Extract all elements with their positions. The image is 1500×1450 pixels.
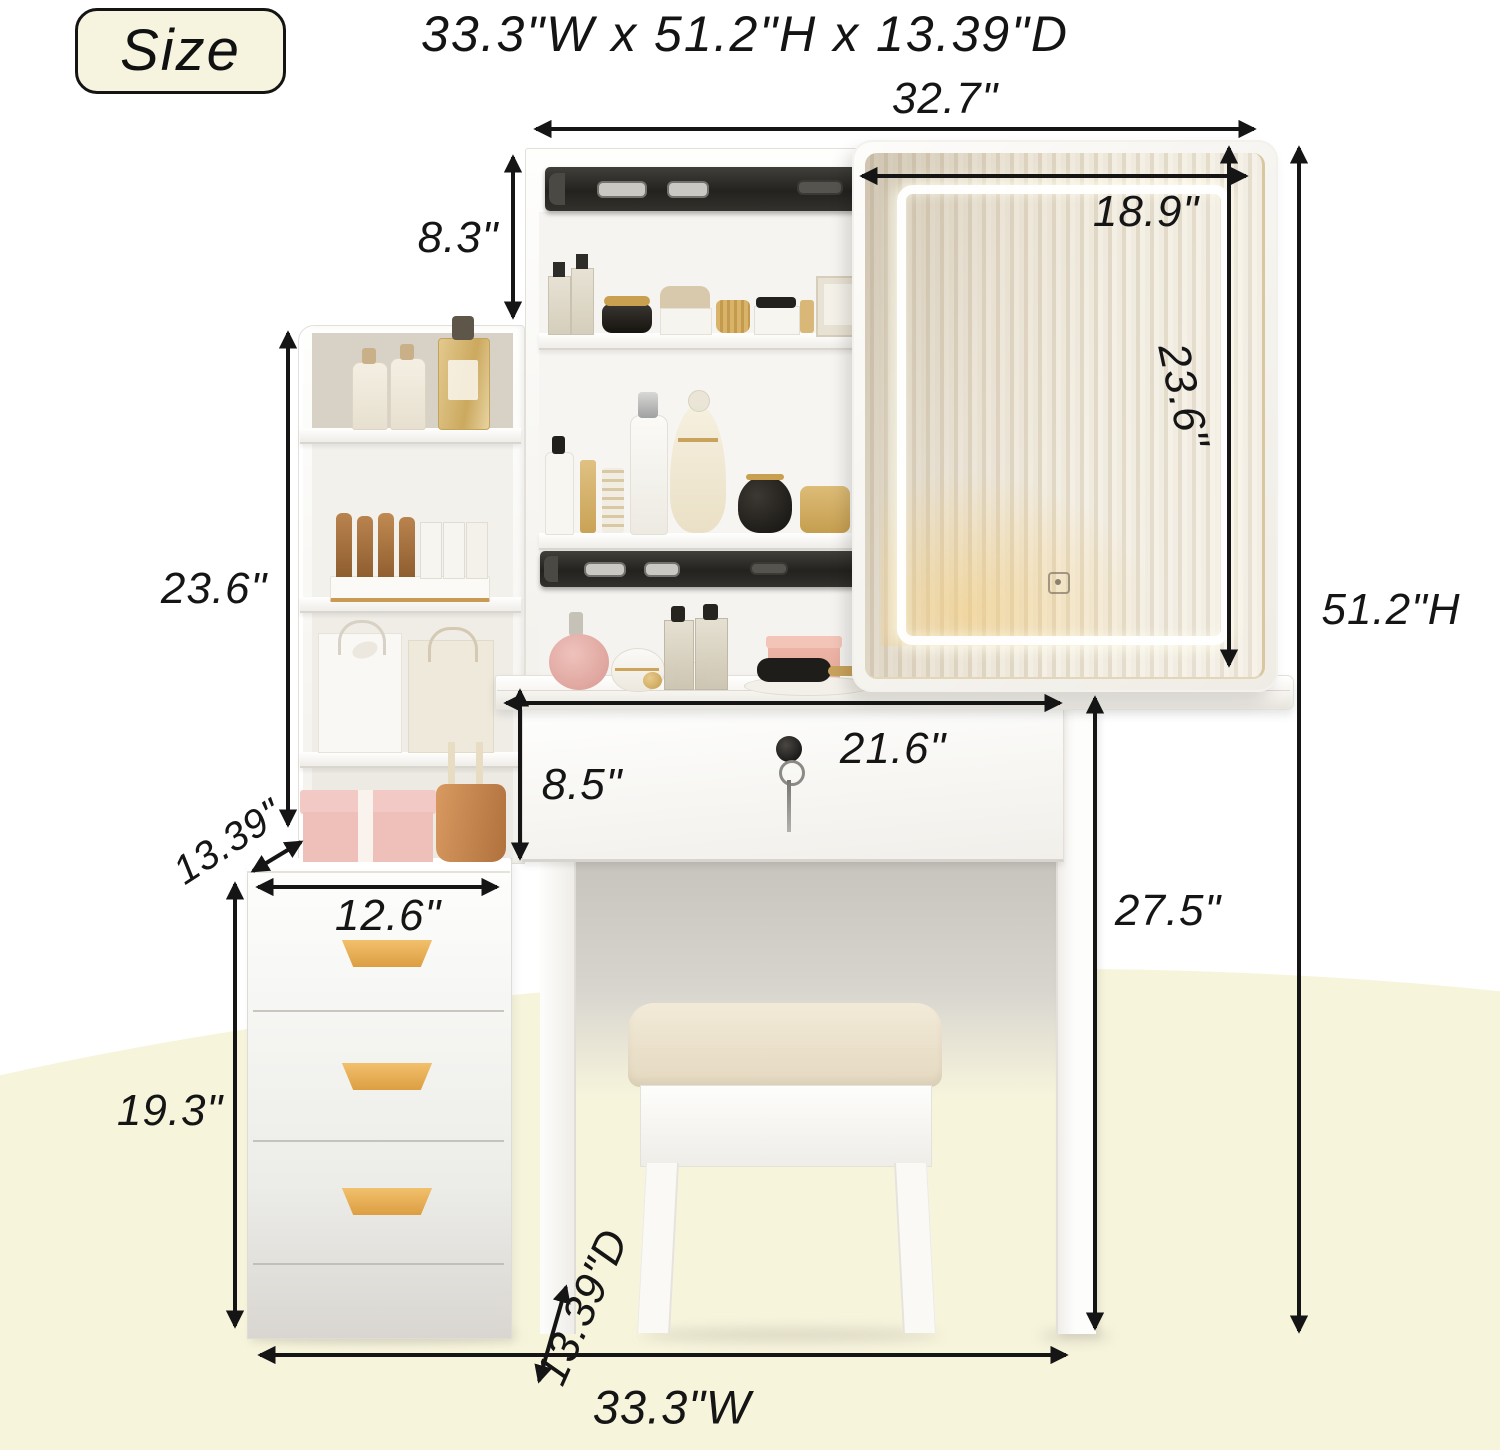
rail-slot — [797, 180, 843, 195]
lipstick — [336, 513, 352, 577]
hair-brush — [757, 658, 831, 682]
pump-bottle — [390, 358, 426, 430]
drawer-gap — [253, 1010, 504, 1012]
dim-mirror-width: 18.9" — [1093, 190, 1199, 234]
lipstick — [399, 517, 415, 577]
gift-bag-handle — [428, 627, 478, 662]
dim-cabinet-height: 19.3" — [117, 1089, 223, 1133]
gift-box-ribbon — [358, 790, 373, 862]
size-badge: Size — [75, 8, 286, 94]
mirror-frame — [852, 140, 1278, 692]
glass-bottle-cap — [703, 604, 718, 620]
jar-gold — [800, 486, 850, 533]
perfume-bottle-cap — [452, 316, 474, 340]
pump-bottle-large — [630, 415, 668, 535]
mirror-touch-dot — [1055, 579, 1061, 585]
lipstick — [357, 516, 373, 577]
cosmetic-box — [443, 522, 465, 579]
perfume-mini — [571, 268, 594, 335]
perfume-mini — [548, 276, 571, 335]
dim-desk-height: 27.5" — [1115, 889, 1221, 933]
dim-top-gap: 8.3" — [418, 216, 499, 260]
stool-cushion — [628, 1003, 942, 1087]
dim-tabletop-width: 21.6" — [840, 727, 946, 771]
tower-shelf-1 — [300, 428, 521, 444]
gold-flask — [800, 300, 814, 333]
glass-bottle-cap — [671, 606, 685, 622]
drawer-slide-rail-bottom — [540, 551, 862, 587]
perfume-mini-cap — [576, 254, 588, 269]
pump-bottle-cap — [400, 344, 414, 360]
drawer-handle — [340, 940, 434, 967]
rail-bracket — [544, 556, 558, 582]
rail-slot — [644, 562, 680, 577]
dim-cabinet-width: 12.6" — [335, 894, 441, 938]
pump-bottle-white — [545, 452, 574, 535]
jar-gold-rim — [746, 474, 784, 480]
jar-black-gold — [602, 304, 652, 333]
lotion-gold-band — [678, 438, 718, 442]
tower-shelf-3 — [300, 752, 521, 768]
pump-bottle — [352, 362, 388, 430]
rail-bracket — [549, 173, 565, 205]
stool-frame — [640, 1085, 932, 1167]
jar-black-ball — [738, 476, 792, 533]
pump-bottle-cap — [362, 348, 376, 364]
dim-overall-width: 33.3"W — [593, 1384, 752, 1431]
cosmetic-box — [420, 522, 442, 579]
jar-two-tone-base — [660, 308, 712, 335]
drawer-handle — [340, 1188, 434, 1215]
lotion-bottle-top — [688, 390, 710, 412]
jar-gold-crinkle — [716, 300, 750, 333]
desktop-front-edge — [497, 690, 1290, 708]
drawer-gap — [253, 1140, 504, 1142]
dim-drawer-height: 8.5" — [542, 763, 623, 807]
handbag — [436, 784, 506, 862]
jar-white-black-lid — [754, 306, 800, 335]
drawer-handle — [340, 1063, 434, 1090]
key-ring — [779, 760, 805, 786]
gold-pearl — [643, 672, 662, 689]
jar-two-tone — [660, 286, 710, 310]
desk-left-leg — [540, 858, 576, 1334]
perfume-round-pink — [549, 634, 609, 690]
dim-overall-height: 51.2"H — [1321, 588, 1460, 632]
slim-gold-bottle — [580, 460, 596, 533]
jar-black-lid — [756, 297, 796, 308]
size-badge-label: Size — [120, 22, 241, 80]
page-title: 33.3"W x 51.2"H x 13.39"D — [421, 5, 1069, 63]
jar-gold-lid — [604, 296, 650, 306]
rail-slot — [667, 181, 709, 198]
jar-gold-line — [615, 668, 659, 671]
glass-bottle — [664, 620, 694, 690]
drawer-lock-keyhole — [776, 736, 802, 762]
pink-box-lid — [766, 636, 842, 648]
pump-top-chrome — [638, 392, 658, 418]
key-shaft — [787, 780, 791, 832]
perfume-sprayer — [569, 612, 583, 636]
lipstick — [378, 513, 394, 577]
lipstick-tray — [330, 576, 490, 602]
striped-bottle — [602, 468, 624, 533]
perfume-mini-cap — [553, 262, 565, 277]
cosmetic-box — [466, 522, 488, 579]
dim-tower-height: 23.6" — [161, 567, 267, 611]
product-dimension-diagram: 32.7" 18.9" 23.6" 8.3" 23.6" 13.39" 12.6… — [0, 0, 1500, 1450]
table-mirror-glass — [824, 284, 854, 325]
stool-floor-shadow — [640, 1328, 940, 1342]
dim-top-width: 32.7" — [892, 77, 998, 121]
rail-slot — [597, 181, 647, 198]
pump-top-black — [552, 436, 565, 454]
glass-bottle — [695, 618, 728, 690]
rail-slot — [584, 562, 626, 577]
perfume-bottle-label — [448, 360, 478, 400]
rail-slot — [750, 562, 788, 575]
drawer-gap — [253, 1263, 504, 1265]
